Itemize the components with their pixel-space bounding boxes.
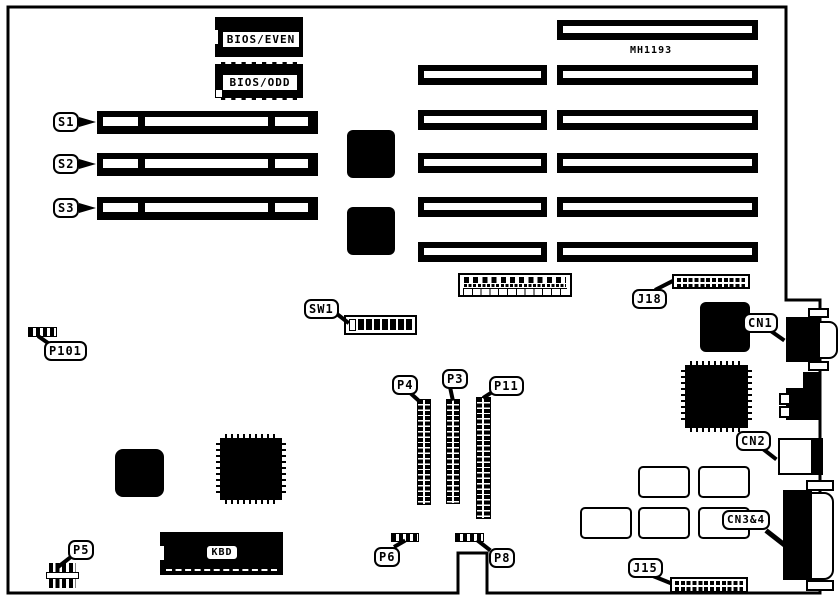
chip bbox=[115, 449, 164, 497]
p11-header bbox=[476, 397, 491, 519]
callout-cn1: CN1 bbox=[743, 313, 778, 333]
memory-slot bbox=[557, 153, 758, 173]
callout-j18: J18 bbox=[632, 289, 667, 309]
cn2-shield bbox=[813, 438, 823, 475]
qfp-chip bbox=[220, 438, 282, 500]
cn1-db9-body bbox=[786, 317, 820, 362]
din-pin bbox=[779, 406, 791, 418]
callout-cn34: CN3&4 bbox=[722, 510, 770, 530]
bios-even-label: BIOS/EVEN bbox=[222, 31, 300, 48]
kbd-label: KBD bbox=[206, 545, 238, 560]
callout-p101: P101 bbox=[44, 341, 87, 361]
cn34-db25-body bbox=[783, 490, 812, 580]
bios-odd-socket: BIOS/ODD bbox=[215, 62, 303, 100]
p101-connector bbox=[28, 327, 57, 337]
callout-p6: P6 bbox=[374, 547, 400, 567]
socket-notch bbox=[216, 90, 222, 97]
bios-odd-label: BIOS/ODD bbox=[222, 74, 298, 91]
memory-slot bbox=[557, 65, 758, 85]
memory-slot bbox=[418, 110, 547, 130]
cn2-connector bbox=[778, 438, 813, 475]
chip-notch bbox=[215, 30, 218, 44]
cn1-db9-shell bbox=[818, 321, 838, 359]
callout-s2: S2 bbox=[53, 154, 79, 174]
callout-sw1: SW1 bbox=[304, 299, 339, 319]
chip-notch bbox=[160, 546, 164, 560]
chip bbox=[347, 130, 395, 178]
callout-p4: P4 bbox=[392, 375, 418, 395]
socket-line bbox=[166, 569, 277, 571]
callout-p5: P5 bbox=[68, 540, 94, 560]
p3-header bbox=[446, 399, 460, 504]
memory-slot bbox=[418, 242, 547, 262]
cn1-screw-tab bbox=[808, 308, 829, 318]
qfp-chip bbox=[685, 365, 748, 428]
memory-slot bbox=[557, 242, 758, 262]
s1-arrow bbox=[79, 117, 96, 127]
p5-connector bbox=[46, 563, 79, 589]
slot-s3 bbox=[97, 197, 318, 220]
din-pin bbox=[779, 393, 791, 405]
solder-pad bbox=[698, 466, 750, 498]
callout-s1: S1 bbox=[53, 112, 79, 132]
solder-pad bbox=[638, 466, 690, 498]
memory-slot bbox=[418, 197, 547, 217]
memory-slot bbox=[418, 65, 547, 85]
sw1-dip-switch bbox=[344, 315, 417, 335]
din-connector bbox=[803, 372, 820, 388]
j15-connector bbox=[670, 577, 748, 593]
j18-connector bbox=[672, 274, 750, 289]
memory-slot bbox=[557, 110, 758, 130]
callout-p3: P3 bbox=[442, 369, 468, 389]
memory-slot bbox=[557, 20, 758, 40]
cn1-screw-tab bbox=[808, 361, 829, 371]
s2-arrow bbox=[79, 159, 96, 169]
callout-s3: S3 bbox=[53, 198, 79, 218]
cn34-db25-shell bbox=[810, 492, 834, 580]
p4-header bbox=[417, 399, 431, 505]
solder-pad bbox=[638, 507, 690, 539]
s3-arrow bbox=[79, 203, 96, 213]
callout-cn2: CN2 bbox=[736, 431, 771, 451]
memory-slot bbox=[418, 153, 547, 173]
callout-j15: J15 bbox=[628, 558, 663, 578]
solder-pad bbox=[580, 507, 632, 539]
bios-even-chip: BIOS/EVEN bbox=[215, 17, 303, 57]
din-connector bbox=[786, 388, 820, 420]
memory-slot bbox=[557, 197, 758, 217]
slot-s1 bbox=[97, 111, 318, 134]
cn34-screw-tab bbox=[806, 480, 834, 491]
callout-p8: P8 bbox=[489, 548, 515, 568]
callout-p11: P11 bbox=[489, 376, 524, 396]
kbd-chip: KBD bbox=[160, 532, 283, 575]
chip bbox=[347, 207, 395, 255]
power-connector bbox=[458, 273, 572, 297]
slot-s2 bbox=[97, 153, 318, 176]
cn34-screw-tab bbox=[806, 580, 834, 591]
motherboard-diagram: BIOS/EVEN BIOS/ODD S1 S2 S3 MH1193 J18 S… bbox=[0, 0, 840, 602]
